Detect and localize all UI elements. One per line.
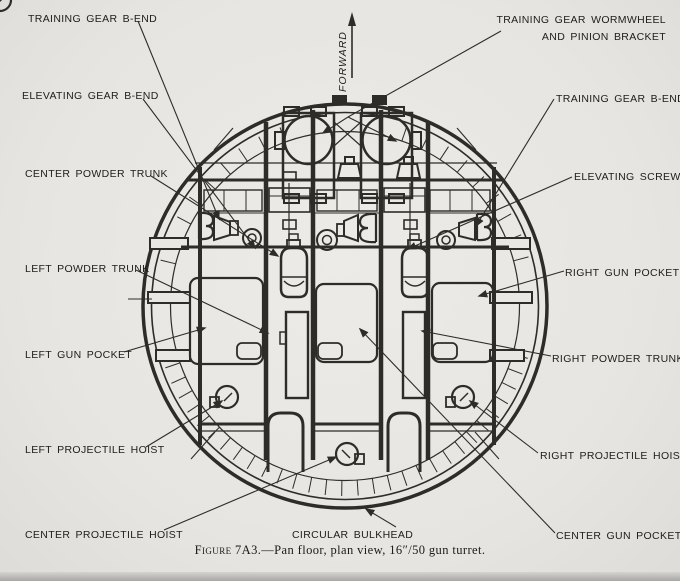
label-center-projectile-hoist: CENTER PROJECTILE HOIST: [25, 527, 183, 544]
label-right-projectile-hoist: RIGHT PROJECTILE HOIST: [540, 448, 680, 465]
forward-arrowhead: [348, 12, 356, 26]
powder-hoists: [281, 172, 428, 297]
label-training-gear-wormwheel-line1: TRAINING GEAR WORMWHEEL: [496, 12, 666, 29]
label-center-powder-trunk: CENTER POWDER TRUNK: [25, 166, 168, 183]
label-right-gun-pocket: RIGHT GUN POCKET: [565, 265, 679, 282]
label-elevating-screw: ELEVATING SCREW: [574, 169, 680, 186]
figure-caption-number: Figure 7A3.: [195, 543, 262, 557]
label-elevating-gear-b-end: ELEVATING GEAR B-END: [22, 88, 159, 105]
forward-label: FORWARD: [337, 31, 349, 92]
label-left-gun-pocket: LEFT GUN POCKET: [25, 347, 132, 364]
label-right-powder-trunk: RIGHT POWDER TRUNK: [552, 351, 680, 368]
label-training-gear-wormwheel: TRAINING GEAR WORMWHEEL AND PINION BRACK…: [496, 12, 666, 46]
label-left-projectile-hoist: LEFT PROJECTILE HOIST: [25, 442, 165, 459]
page-edge-shadow: [0, 572, 680, 581]
figure-caption: Figure 7A3.—Pan floor, plan view, 16″/50…: [0, 543, 680, 558]
forward-arrow: FORWARD: [337, 12, 356, 92]
label-left-powder-trunk: LEFT POWDER TRUNK: [25, 261, 150, 278]
figure-caption-text: —Pan floor, plan view, 16″/50 gun turret…: [261, 543, 485, 557]
manual-page: FORWARD TRAINING GEAR B-END ELEVATING GE…: [0, 0, 680, 581]
gun-pockets: [190, 278, 493, 364]
machinery-compartments: [204, 188, 490, 212]
powder-trunks: [280, 312, 425, 398]
label-training-gear-b-end-right: TRAINING GEAR B-END: [556, 91, 680, 108]
label-circular-bulkhead: CIRCULAR BULKHEAD: [292, 527, 413, 544]
label-training-gear-wormwheel-line2: AND PINION BRACKET: [496, 29, 666, 46]
label-training-gear-b-end-left: TRAINING GEAR B-END: [28, 11, 157, 28]
